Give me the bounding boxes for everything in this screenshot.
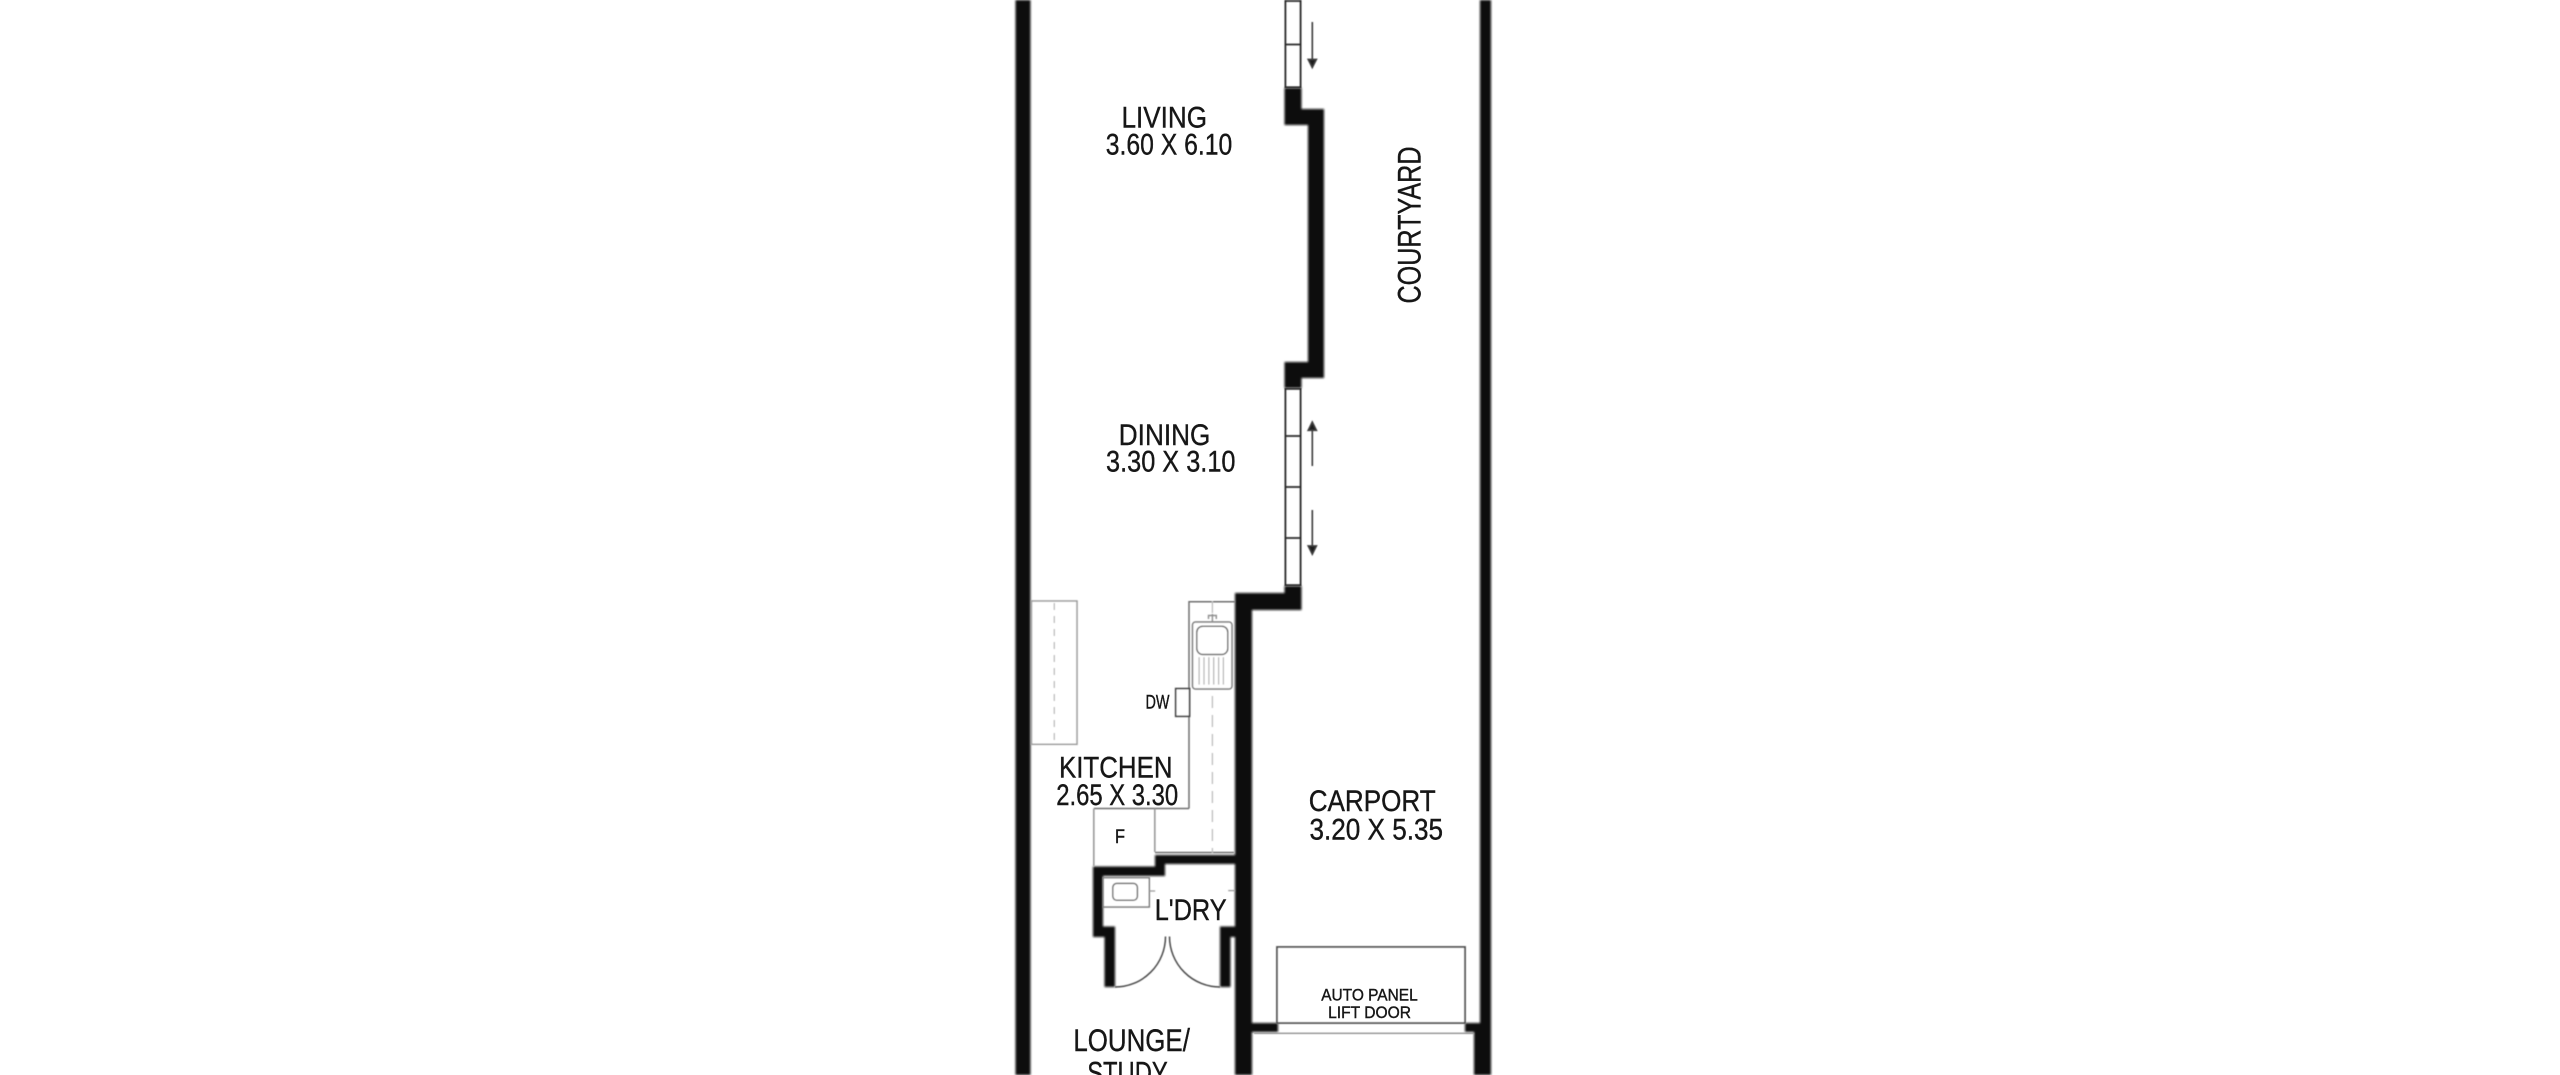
svg-text:3.20 X 5.35: 3.20 X 5.35 [1310, 814, 1444, 847]
svg-text:2.65 X 3.30: 2.65 X 3.30 [1056, 779, 1178, 812]
svg-text:3.30 X 3.10: 3.30 X 3.10 [1106, 446, 1236, 479]
svg-text:LIFT DOOR: LIFT DOOR [1328, 1004, 1411, 1022]
svg-text:F: F [1115, 827, 1125, 848]
svg-text:COURTYARD: COURTYARD [1392, 147, 1428, 304]
svg-text:DW: DW [1146, 692, 1170, 713]
svg-text:L'DRY: L'DRY [1155, 894, 1227, 927]
svg-text:LOUNGE/: LOUNGE/ [1073, 1022, 1190, 1058]
svg-text:STUDY: STUDY [1087, 1054, 1168, 1075]
svg-text:3.60 X 6.10: 3.60 X 6.10 [1106, 129, 1233, 162]
svg-text:AUTO PANEL: AUTO PANEL [1321, 986, 1418, 1004]
